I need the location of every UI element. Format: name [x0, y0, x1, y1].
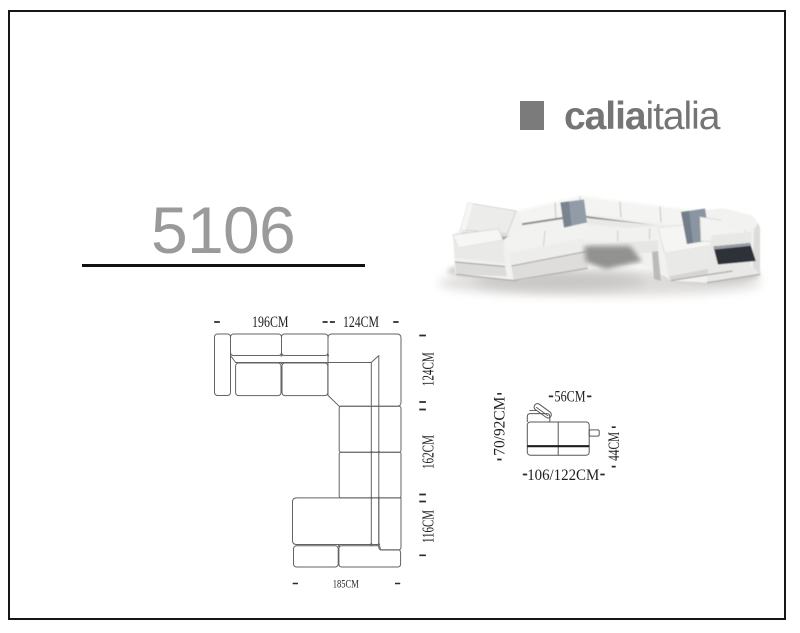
svg-text:106/122CM: 106/122CM	[527, 467, 599, 484]
svg-text:70/92CM: 70/92CM	[492, 396, 509, 455]
svg-text:56CM: 56CM	[555, 388, 586, 405]
svg-text:44CM: 44CM	[606, 432, 623, 461]
